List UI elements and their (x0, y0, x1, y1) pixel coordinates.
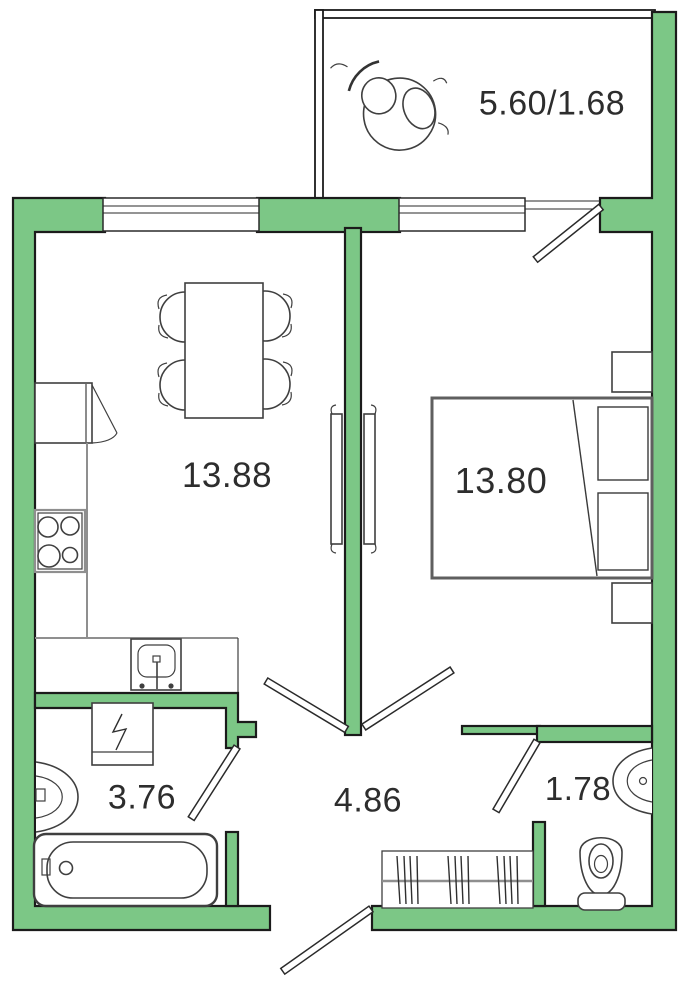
floor-plan-drawing (0, 0, 679, 983)
washing-machine-icon (92, 703, 153, 765)
bathroom-door-leaf (188, 745, 240, 820)
toilet-icon (578, 838, 625, 910)
toilet-top-wall (537, 726, 652, 742)
stove-icon (35, 510, 85, 572)
armchairs-icon (330, 49, 455, 158)
bedroom-area-label: 13.80 (455, 460, 548, 502)
kitchen-door-leaf (264, 678, 348, 732)
balcony-area-label: 5.60/1.68 (479, 85, 625, 124)
bathtub-icon (34, 834, 217, 906)
bathroom-lower-stub (226, 832, 238, 906)
nightstand-icon (612, 352, 652, 392)
central-wall (345, 228, 361, 735)
kitchen-window (103, 198, 259, 231)
bathroom-area-label: 3.76 (108, 779, 176, 818)
balcony-door-threshold (525, 201, 600, 209)
dining-table-icon (185, 283, 263, 418)
top-wall-pillar (257, 198, 400, 232)
nightstand-icon (612, 583, 652, 623)
balcony-door-leaf (533, 204, 603, 262)
balcony-top-wall (315, 10, 655, 18)
bathroom-sink-icon (36, 762, 78, 832)
toilet-left-stub (533, 822, 545, 906)
balcony-furniture (330, 49, 455, 158)
bedroom-window (399, 198, 525, 231)
balcony-left-wall (315, 10, 323, 200)
floor-plan: 5.60/1.68 13.88 13.80 3.76 4.86 1.78 (0, 0, 679, 983)
wardrobe-icon (382, 851, 533, 908)
hallway-furniture (382, 851, 533, 908)
entrance-door-leaf (281, 906, 373, 974)
kitchen-sink-icon (131, 639, 181, 690)
kitchen-living-area-label: 13.88 (182, 456, 272, 496)
toilet-door-leaf (493, 739, 540, 812)
toilet-area-label: 1.78 (545, 770, 611, 808)
bedroom-door-leaf (362, 667, 454, 730)
hallway-area-label: 4.86 (334, 782, 402, 821)
toilet-top-wall-thin (462, 726, 540, 734)
refrigerator-icon (35, 383, 117, 443)
toilet-sink-icon (613, 748, 652, 814)
